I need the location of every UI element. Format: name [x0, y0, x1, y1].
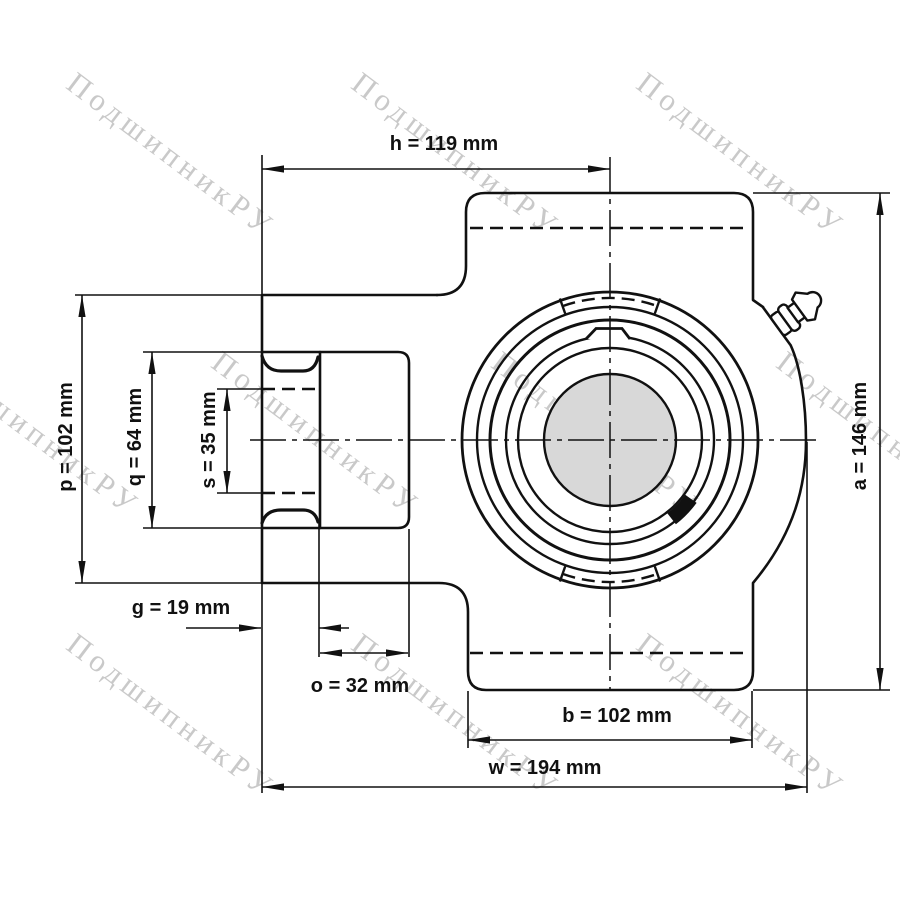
technical-drawing: ПодшипникРУ ПодшипникРУ ПодшипникРУ Подш…: [0, 0, 900, 900]
dim-label-a: a = 146 mm: [849, 382, 871, 490]
dim-label-g: g = 19 mm: [132, 597, 230, 619]
lube-groove-key: [586, 329, 630, 340]
dim-label-o: o = 32 mm: [311, 675, 409, 697]
dim-label-p: p = 102 mm: [55, 382, 77, 492]
slot-lip-top: [262, 356, 318, 371]
bore-hidden-arc-top: [563, 298, 658, 306]
watermark-text: ПодшипникРУ: [60, 626, 282, 805]
dim-label-s: s = 35 mm: [198, 391, 220, 488]
dim-label-b: b = 102 mm: [562, 705, 672, 727]
dim-label-w: w = 194 mm: [488, 757, 602, 779]
dim-label-h: h = 119 mm: [390, 133, 498, 155]
centerlines: [250, 157, 818, 690]
watermark-text: ПодшипникРУ: [205, 344, 427, 523]
slot-lip-bottom: [262, 510, 318, 523]
bore-hidden-arc-bottom: [563, 574, 658, 582]
watermark-text: ПодшипникРУ: [630, 65, 852, 244]
housing-body-outline: [437, 193, 763, 307]
watermark-text: ПодшипникРУ: [60, 65, 282, 244]
dim-label-q: q = 64 mm: [124, 388, 146, 486]
grease-fitting: [763, 276, 834, 346]
drawing-canvas: ПодшипникРУ ПодшипникРУ ПодшипникРУ Подш…: [0, 0, 900, 900]
